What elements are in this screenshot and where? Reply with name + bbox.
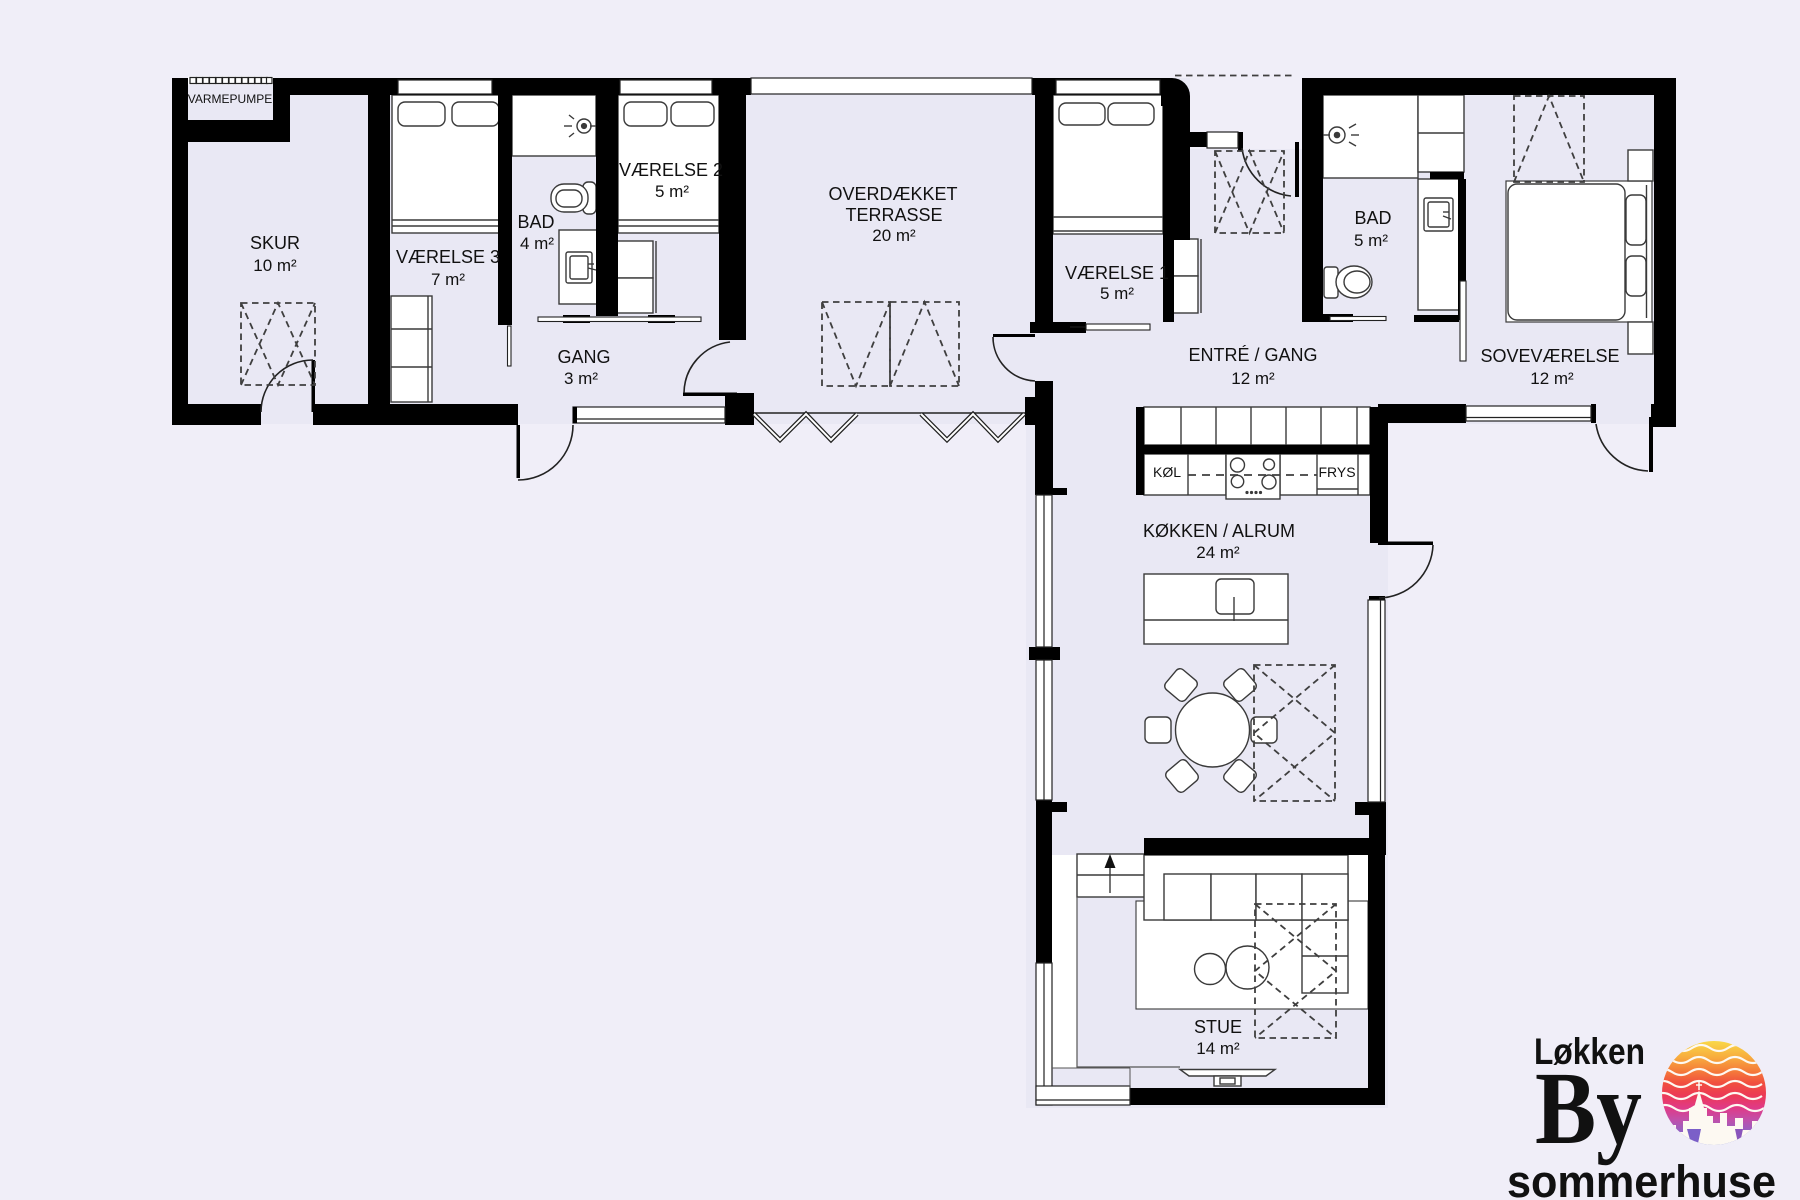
svg-text:GANG: GANG xyxy=(557,347,610,367)
svg-text:7 m²: 7 m² xyxy=(431,270,465,289)
svg-text:5 m²: 5 m² xyxy=(1354,231,1388,250)
svg-text:VÆRELSE 3: VÆRELSE 3 xyxy=(396,247,500,267)
svg-text:OVERDÆKKET: OVERDÆKKET xyxy=(828,184,957,204)
svg-text:24 m²: 24 m² xyxy=(1196,543,1240,562)
svg-text:10 m²: 10 m² xyxy=(253,256,297,275)
svg-text:VARMEPUMPE: VARMEPUMPE xyxy=(188,92,272,106)
svg-text:14 m²: 14 m² xyxy=(1196,1039,1240,1058)
svg-text:KØKKEN / ALRUM: KØKKEN / ALRUM xyxy=(1143,521,1295,541)
svg-text:5 m²: 5 m² xyxy=(655,182,689,201)
svg-text:4 m²: 4 m² xyxy=(520,234,554,253)
svg-text:TERRASSE: TERRASSE xyxy=(845,205,942,225)
svg-text:By: By xyxy=(1535,1051,1642,1166)
svg-text:FRYS: FRYS xyxy=(1318,464,1355,480)
svg-text:ENTRÉ / GANG: ENTRÉ / GANG xyxy=(1188,345,1317,365)
svg-text:VÆRELSE 1: VÆRELSE 1 xyxy=(1065,263,1169,283)
svg-text:BAD: BAD xyxy=(1354,208,1391,228)
svg-text:SKUR: SKUR xyxy=(250,233,300,253)
svg-text:VÆRELSE 2: VÆRELSE 2 xyxy=(619,160,723,180)
svg-text:3 m²: 3 m² xyxy=(564,369,598,388)
svg-text:SOVEVÆRELSE: SOVEVÆRELSE xyxy=(1480,346,1619,366)
svg-text:5 m²: 5 m² xyxy=(1100,284,1134,303)
svg-text:KØL: KØL xyxy=(1153,464,1181,480)
svg-text:sommerhuse: sommerhuse xyxy=(1507,1156,1776,1200)
svg-text:20 m²: 20 m² xyxy=(872,226,916,245)
svg-text:STUE: STUE xyxy=(1194,1017,1242,1037)
svg-text:12 m²: 12 m² xyxy=(1530,369,1574,388)
svg-text:12 m²: 12 m² xyxy=(1231,369,1275,388)
svg-text:BAD: BAD xyxy=(517,212,554,232)
